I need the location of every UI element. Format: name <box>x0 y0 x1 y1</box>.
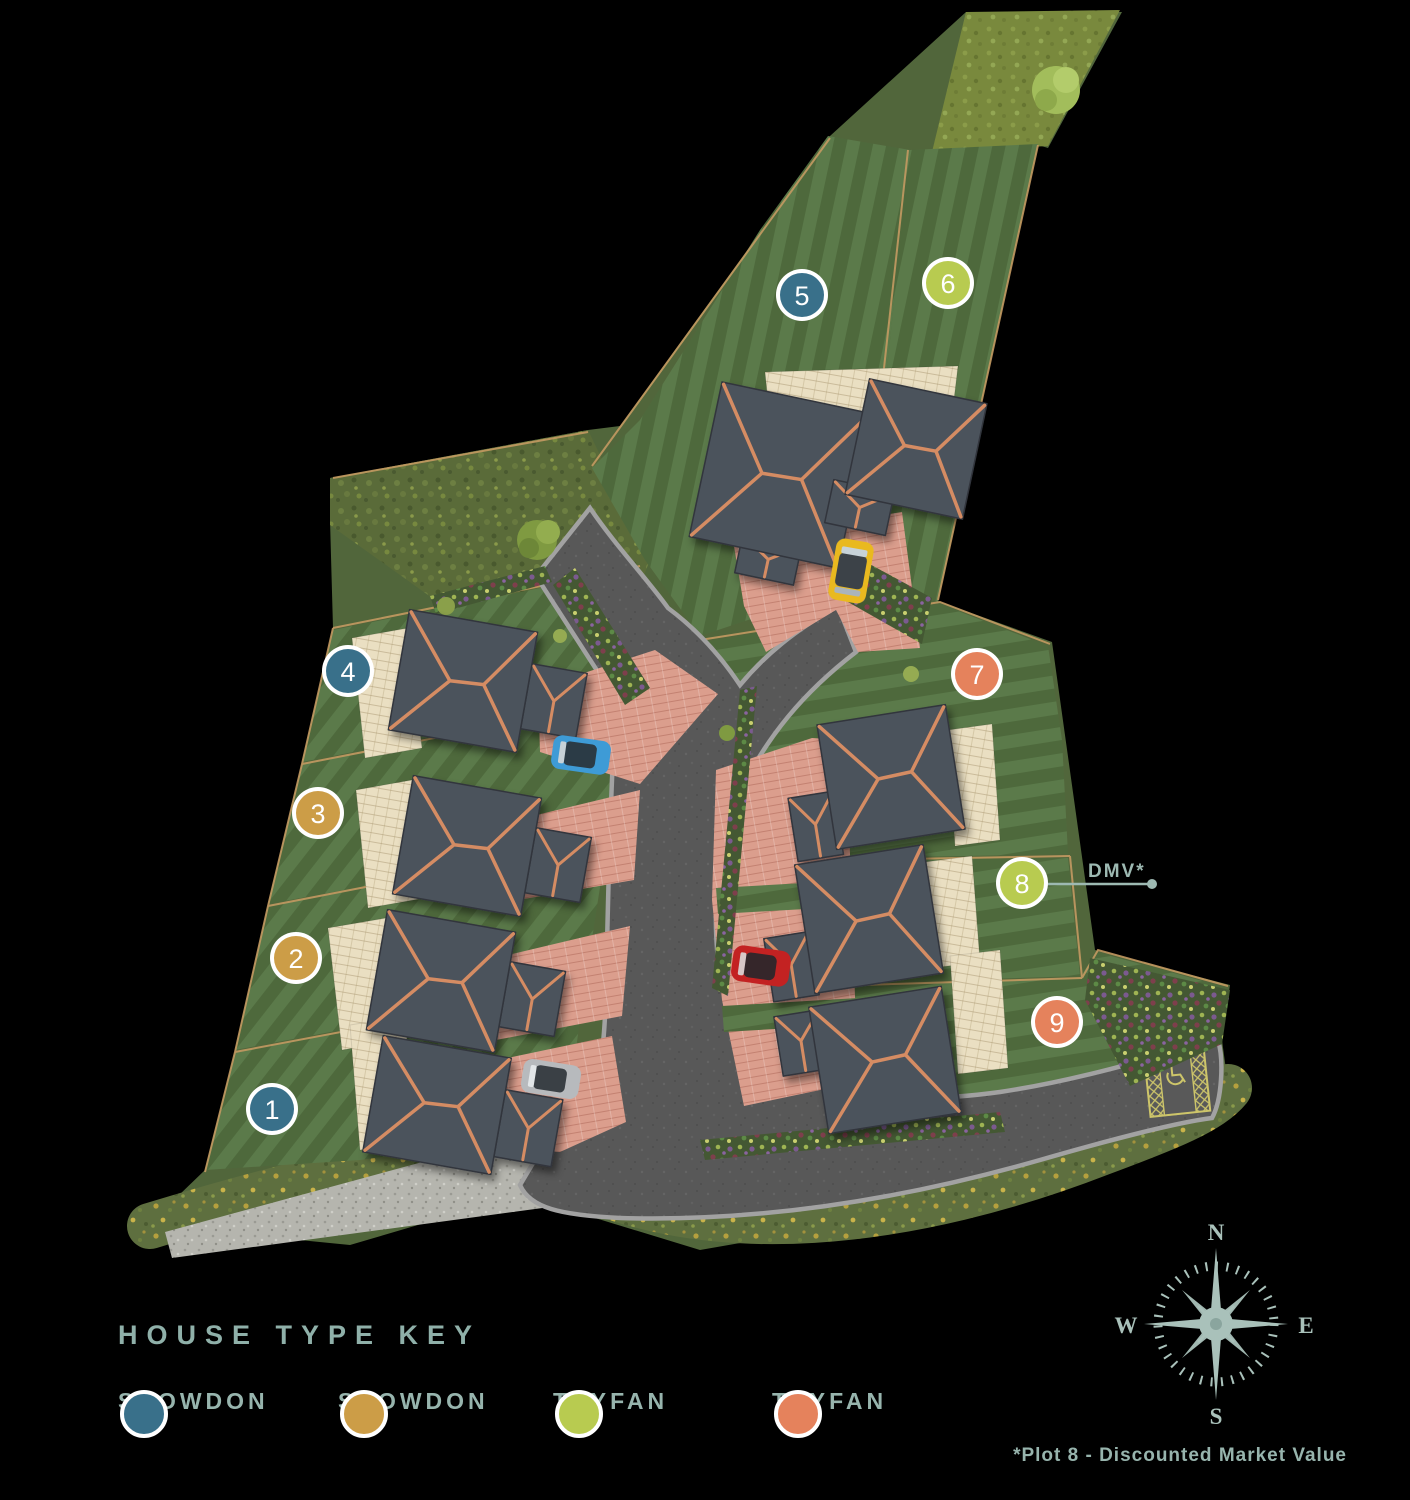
svg-text:9: 9 <box>1049 1008 1064 1038</box>
legend-swatch-orange-icon <box>772 1388 824 1440</box>
plot-marker-3[interactable]: 3 <box>292 787 344 839</box>
compass-north-label: N <box>1208 1220 1225 1245</box>
dmv-label: DMV* <box>1088 861 1146 882</box>
site-plan-map: DMV* 1 2 3 4 5 <box>0 0 1410 1500</box>
plot-marker-8[interactable]: 8 <box>996 857 1048 909</box>
compass-south-label: S <box>1210 1404 1223 1429</box>
site-plan-page: DMV* 1 2 3 4 5 <box>0 0 1410 1500</box>
plot-marker-9[interactable]: 9 <box>1031 996 1083 1048</box>
legend-swatch-lime-icon <box>553 1388 605 1440</box>
legend-item-snowdon-gold: SNOWDON <box>338 1388 489 1415</box>
svg-text:2: 2 <box>288 944 303 974</box>
svg-text:8: 8 <box>1014 869 1029 899</box>
compass-rose: N S W E <box>1115 1220 1314 1429</box>
compass-east-label: E <box>1298 1313 1313 1338</box>
legend-item-tryfan-orange: TRYFAN <box>772 1388 887 1415</box>
legend-swatch-teal-icon <box>118 1388 170 1440</box>
dmv-leader-dot <box>1147 879 1157 889</box>
plot-marker-1[interactable]: 1 <box>246 1083 298 1135</box>
plot-marker-7[interactable]: 7 <box>951 648 1003 700</box>
footnote: *Plot 8 - Discounted Market Value <box>1013 1445 1347 1467</box>
plot-marker-6[interactable]: 6 <box>922 257 974 309</box>
compass-west-label: W <box>1115 1313 1138 1338</box>
plot-marker-2[interactable]: 2 <box>270 932 322 984</box>
svg-text:3: 3 <box>310 799 325 829</box>
legend-title: HOUSE TYPE KEY <box>118 1320 481 1351</box>
legend-item-tryfan-lime: TRYFAN <box>553 1388 668 1415</box>
svg-text:4: 4 <box>340 657 355 687</box>
svg-text:1: 1 <box>264 1095 279 1125</box>
svg-text:6: 6 <box>940 269 955 299</box>
legend-swatch-gold-icon <box>338 1388 390 1440</box>
plot-marker-5[interactable]: 5 <box>776 269 828 321</box>
legend-item-snowdon-teal: SNOWDON <box>118 1388 269 1415</box>
svg-text:7: 7 <box>969 660 984 690</box>
svg-text:5: 5 <box>794 281 809 311</box>
plot-marker-4[interactable]: 4 <box>322 645 374 697</box>
